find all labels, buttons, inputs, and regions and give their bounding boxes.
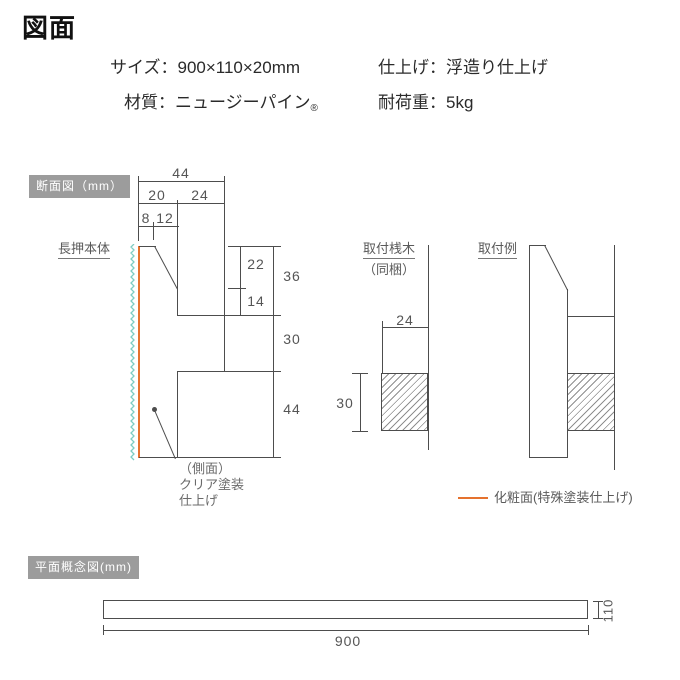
spec-size: サイズ：900×110×20mm: [110, 53, 300, 78]
dim-value: 8: [139, 211, 153, 225]
extension-line: [138, 176, 139, 241]
batten-sublabel: （同梱）: [363, 263, 415, 276]
dim-line-22-14: [240, 246, 241, 316]
section-view-badge: 断面図（mm）: [29, 175, 130, 198]
dim-value: 30: [280, 332, 304, 346]
extension-line: [382, 321, 383, 373]
profile-bottom-edge: [529, 457, 568, 458]
install-label: 取付例: [478, 242, 517, 259]
drawing-stroke: [131, 244, 134, 460]
dim-line-36-30-44: [273, 246, 274, 458]
batten-hatched: [381, 373, 428, 431]
plan-view-badge: 平面概念図(mm): [28, 556, 139, 579]
side-finish-note: （側面） クリア塗装 仕上げ: [179, 461, 244, 509]
profile-hook-bottom: [177, 371, 225, 372]
dim-tick: [228, 288, 246, 289]
profile-slope: [544, 245, 568, 291]
dim-value: 14: [244, 294, 268, 308]
legend-orange-line: [458, 497, 488, 499]
dim-line-8-12: [138, 226, 179, 227]
dim-value: 44: [168, 166, 194, 180]
plan-rectangle: [103, 600, 588, 619]
dim-value: 36: [280, 269, 304, 283]
technical-drawing-page: 図面 サイズ：900×110×20mm 仕上げ：浮造り仕上げ 材質：ニュージーパ…: [0, 0, 680, 680]
dim-line-110: [598, 601, 599, 619]
page-title: 図面: [22, 8, 76, 45]
dim-value: 20: [144, 188, 170, 202]
dim-value: 900: [328, 634, 368, 648]
extension-line: [225, 371, 281, 372]
profile-hook-top: [177, 315, 225, 316]
leader-line: [154, 410, 176, 459]
batten-hatched: [567, 373, 615, 431]
wall-line: [614, 245, 615, 470]
dim-line-20-24: [138, 203, 225, 204]
side-finish-note-line1: （側面）: [179, 461, 244, 477]
wall-break-zigzag: [129, 244, 137, 461]
batten-label: 取付桟木: [363, 242, 415, 259]
profile-slope: [154, 246, 178, 290]
body-label: 長押本体: [58, 242, 110, 259]
profile-bottom-edge: [139, 457, 178, 458]
dim-value: 110: [602, 597, 615, 625]
extension-line: [225, 315, 281, 316]
spec-finish: 仕上げ：浮造り仕上げ: [378, 53, 548, 78]
registered-mark: ®: [311, 103, 318, 114]
dim-value: 12: [154, 211, 176, 225]
spec-material-text: 材質：ニュージーパイン: [124, 93, 311, 112]
dim-value: 22: [244, 257, 268, 271]
dim-tick: [588, 625, 589, 635]
spec-material: 材質：ニュージーパイン®: [124, 88, 318, 114]
side-finish-note-line3: 仕上げ: [179, 493, 244, 509]
wall-line: [428, 245, 429, 450]
dim-tick: [352, 373, 368, 374]
profile-hook-top: [567, 316, 615, 317]
dim-tick: [103, 625, 104, 635]
dim-value: 24: [187, 188, 213, 202]
dim-line-30: [360, 373, 361, 432]
spec-load: 耐荷重：5kg: [378, 88, 473, 113]
extension-line: [177, 457, 281, 458]
dim-line-44: [138, 181, 225, 182]
dim-value: 24: [393, 313, 417, 327]
dim-tick: [352, 431, 368, 432]
dim-line-900: [103, 630, 589, 631]
legend-label: 化粧面(特殊塗装仕上げ): [494, 491, 633, 504]
extension-line: [177, 200, 178, 315]
profile-back-edge: [177, 371, 178, 458]
side-finish-note-line2: クリア塗装: [179, 477, 244, 493]
extension-line: [224, 176, 225, 316]
profile-front-face: [529, 245, 530, 458]
decorative-face-line: [138, 246, 140, 458]
dim-value: 44: [280, 402, 304, 416]
dim-value: 30: [334, 396, 356, 410]
profile-hook-right: [224, 315, 225, 372]
